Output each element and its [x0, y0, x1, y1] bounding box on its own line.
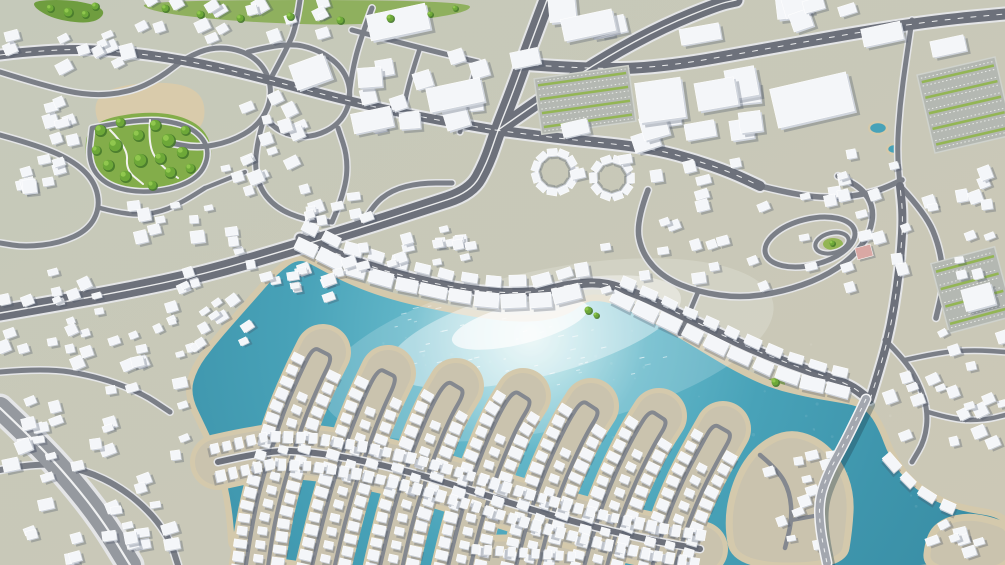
map-viewport — [0, 0, 1005, 565]
city-map-render — [0, 0, 1005, 565]
pond — [869, 122, 887, 134]
